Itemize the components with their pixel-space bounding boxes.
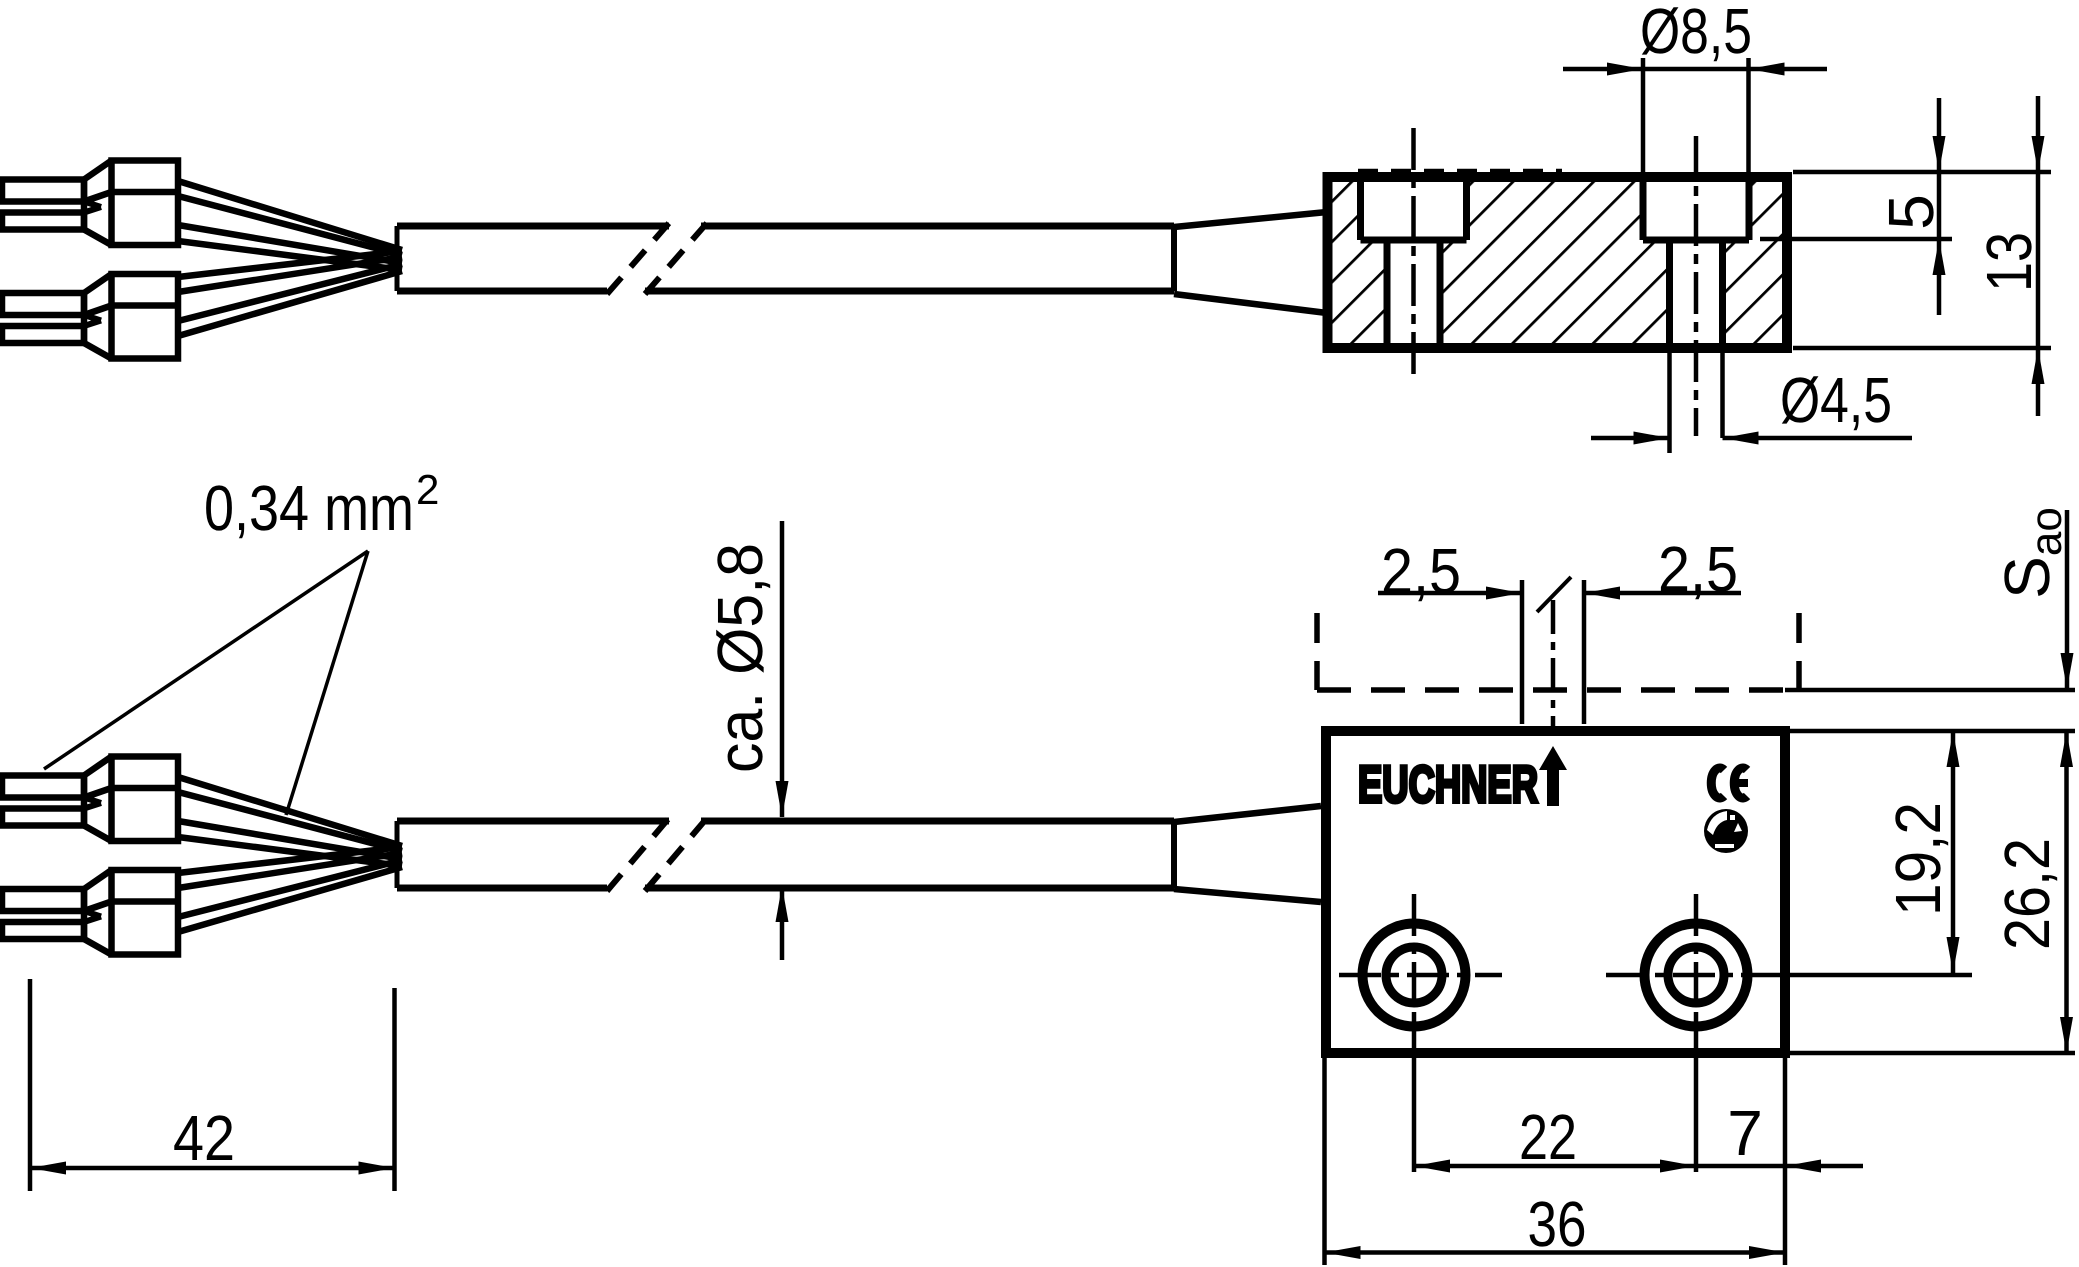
svg-text:26,2: 26,2 <box>1991 838 2063 950</box>
svg-text:Ø4,5: Ø4,5 <box>1780 364 1892 436</box>
svg-text:36: 36 <box>1528 1188 1587 1260</box>
svg-text:EUCHNER: EUCHNER <box>1358 756 1538 814</box>
svg-text:7: 7 <box>1727 1097 1763 1169</box>
svg-text:2,5: 2,5 <box>1381 535 1461 607</box>
svg-text:42: 42 <box>173 1102 235 1174</box>
svg-text:0,34 mm: 0,34 mm <box>204 472 414 544</box>
svg-text:ca. Ø5,8: ca. Ø5,8 <box>704 543 776 773</box>
svg-text:19,2: 19,2 <box>1882 802 1954 916</box>
svg-text:2: 2 <box>416 466 439 513</box>
svg-text:13: 13 <box>1973 232 2045 292</box>
svg-text:5: 5 <box>1875 194 1947 230</box>
svg-text:2,5: 2,5 <box>1658 533 1738 605</box>
svg-text:22: 22 <box>1519 1101 1577 1173</box>
svg-text:Ø8,5: Ø8,5 <box>1640 0 1752 67</box>
